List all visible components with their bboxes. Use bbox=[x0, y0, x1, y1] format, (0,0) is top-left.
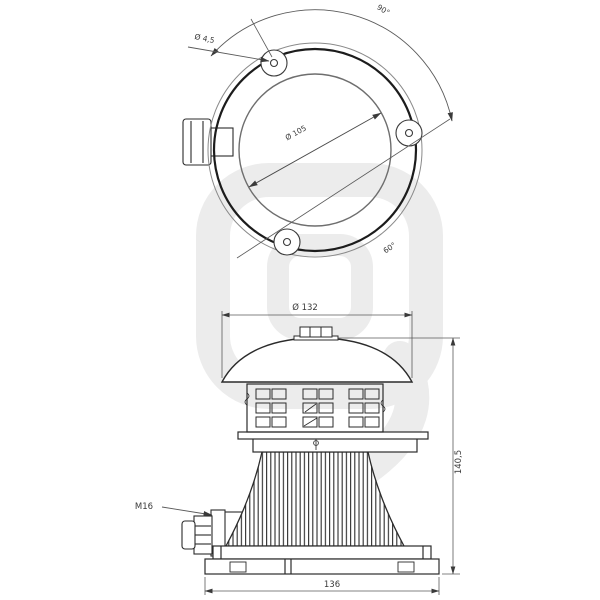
dim-label-bottom-angle: 60° bbox=[382, 240, 398, 255]
motor-block bbox=[253, 438, 417, 452]
dim-label-top-diameter: Ø 132 bbox=[292, 302, 318, 313]
base-flange bbox=[205, 546, 439, 574]
dim-label-inner-diameter: Ø 105 bbox=[284, 123, 308, 142]
dim-label-gland-thread: M16 bbox=[135, 502, 153, 512]
dim-label-base-width: 136 bbox=[324, 580, 340, 590]
technical-drawing-page: 90° Ø 4,5 Ø 105 60° bbox=[0, 0, 600, 600]
dome-cap bbox=[222, 338, 412, 382]
dim-base-width: 136 bbox=[205, 577, 439, 595]
technical-drawing-canvas: 90° Ø 4,5 Ø 105 60° bbox=[0, 0, 600, 600]
dim-gland-thread: M16 bbox=[135, 502, 212, 515]
dim-hole-diameter: Ø 4,5 bbox=[188, 32, 269, 61]
dim-label-hole-diameter: Ø 4,5 bbox=[194, 32, 216, 45]
dim-label-height: 140,5 bbox=[454, 450, 464, 474]
dim-90-degrees: 90° bbox=[211, 3, 452, 121]
dome-top-knob bbox=[294, 327, 338, 340]
dim-label-top-angle: 90° bbox=[375, 3, 391, 18]
flange-plate bbox=[238, 432, 428, 439]
